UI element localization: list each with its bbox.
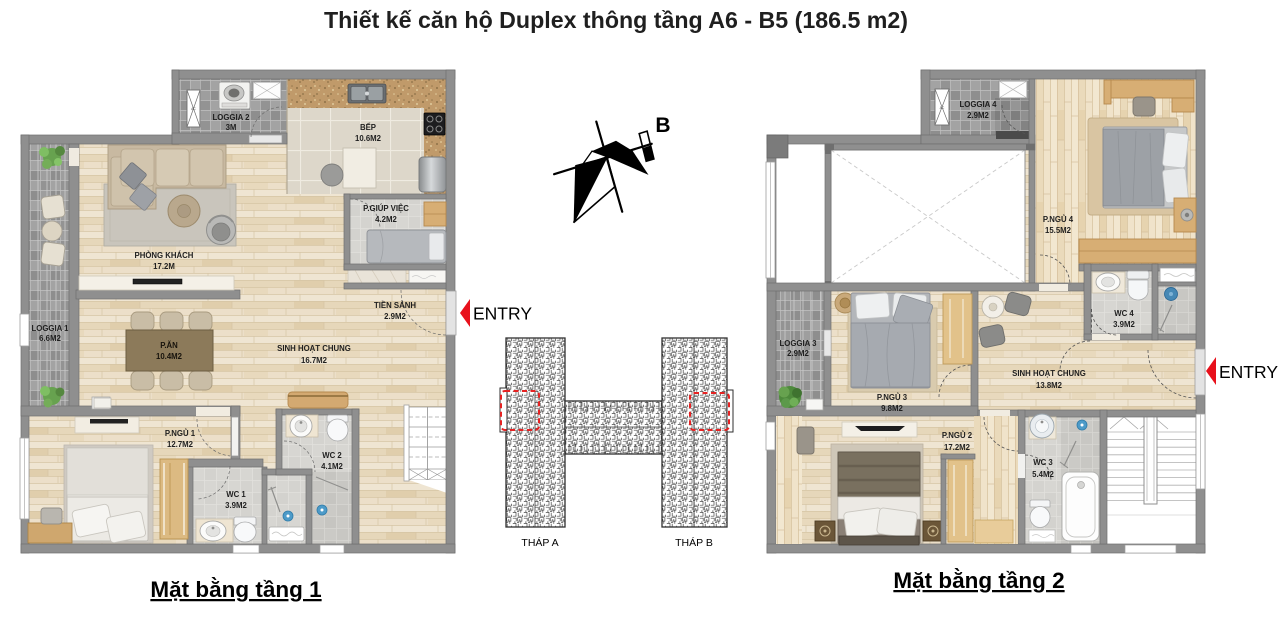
svg-text:P.GIÚP VIỆC: P.GIÚP VIỆC (363, 204, 409, 213)
svg-text:BẾP: BẾP (360, 122, 376, 132)
svg-text:16.7M2: 16.7M2 (301, 356, 328, 365)
svg-text:4.1M2: 4.1M2 (321, 462, 343, 471)
svg-text:ENTRY: ENTRY (1219, 362, 1278, 382)
svg-text:10.6M2: 10.6M2 (355, 134, 382, 143)
svg-text:SINH HOẠT CHUNG: SINH HOẠT CHUNG (277, 344, 351, 353)
svg-text:13.8M2: 13.8M2 (1036, 381, 1063, 390)
svg-text:P.NGỦ 1: P.NGỦ 1 (165, 429, 196, 438)
svg-text:PHÒNG KHÁCH: PHÒNG KHÁCH (135, 251, 194, 260)
svg-text:Mặt bằng tầng 2: Mặt bằng tầng 2 (893, 568, 1064, 593)
svg-text:2.9M2: 2.9M2 (967, 111, 989, 120)
svg-text:17.2M: 17.2M (153, 262, 175, 271)
svg-text:2.9M2: 2.9M2 (787, 349, 809, 358)
svg-text:WC 2: WC 2 (322, 451, 342, 460)
svg-text:LOGGIA 2: LOGGIA 2 (213, 113, 251, 122)
svg-text:3.9M2: 3.9M2 (1113, 320, 1135, 329)
svg-text:WC 1: WC 1 (226, 490, 246, 499)
svg-text:SINH HOẠT CHUNG: SINH HOẠT CHUNG (1012, 369, 1086, 378)
svg-text:6.6M2: 6.6M2 (39, 334, 61, 343)
svg-text:TIỀN SẢNH: TIỀN SẢNH (374, 300, 416, 310)
svg-text:10.4M2: 10.4M2 (156, 352, 183, 361)
svg-text:Mặt bằng tầng 1: Mặt bằng tầng 1 (150, 577, 321, 602)
svg-text:4.2M2: 4.2M2 (375, 215, 397, 224)
svg-text:THÁP A: THÁP A (521, 536, 558, 549)
svg-text:AC: AC (940, 106, 945, 110)
svg-text:Thiết kế căn hộ Duplex thông t: Thiết kế căn hộ Duplex thông tầng A6 - B… (324, 7, 908, 33)
svg-text:17.2M2: 17.2M2 (944, 443, 971, 452)
svg-text:P.NGỦ 4: P.NGỦ 4 (1043, 215, 1074, 224)
svg-text:3M: 3M (226, 123, 237, 132)
svg-text:THÁP B: THÁP B (675, 536, 713, 549)
svg-text:LOGGIA 1: LOGGIA 1 (32, 324, 70, 333)
svg-text:P.NGỦ 2: P.NGỦ 2 (942, 431, 973, 440)
svg-text:LOGGIA 4: LOGGIA 4 (960, 100, 998, 109)
svg-text:B: B (655, 114, 670, 137)
svg-text:AC: AC (191, 107, 196, 111)
svg-text:12.7M2: 12.7M2 (167, 440, 194, 449)
svg-text:P.ĂN: P.ĂN (160, 341, 178, 350)
svg-text:2.9M2: 2.9M2 (384, 312, 406, 321)
svg-text:WC 4: WC 4 (1114, 309, 1134, 318)
svg-text:ENTRY: ENTRY (473, 304, 532, 324)
svg-text:3.9M2: 3.9M2 (225, 501, 247, 510)
svg-text:5.4M2: 5.4M2 (1032, 470, 1054, 479)
svg-text:WC 3: WC 3 (1033, 458, 1053, 467)
svg-text:P.NGỦ 3: P.NGỦ 3 (877, 393, 908, 402)
svg-text:9.8M2: 9.8M2 (881, 404, 903, 413)
svg-text:15.5M2: 15.5M2 (1045, 226, 1072, 235)
svg-text:LOGGIA 3: LOGGIA 3 (780, 339, 818, 348)
